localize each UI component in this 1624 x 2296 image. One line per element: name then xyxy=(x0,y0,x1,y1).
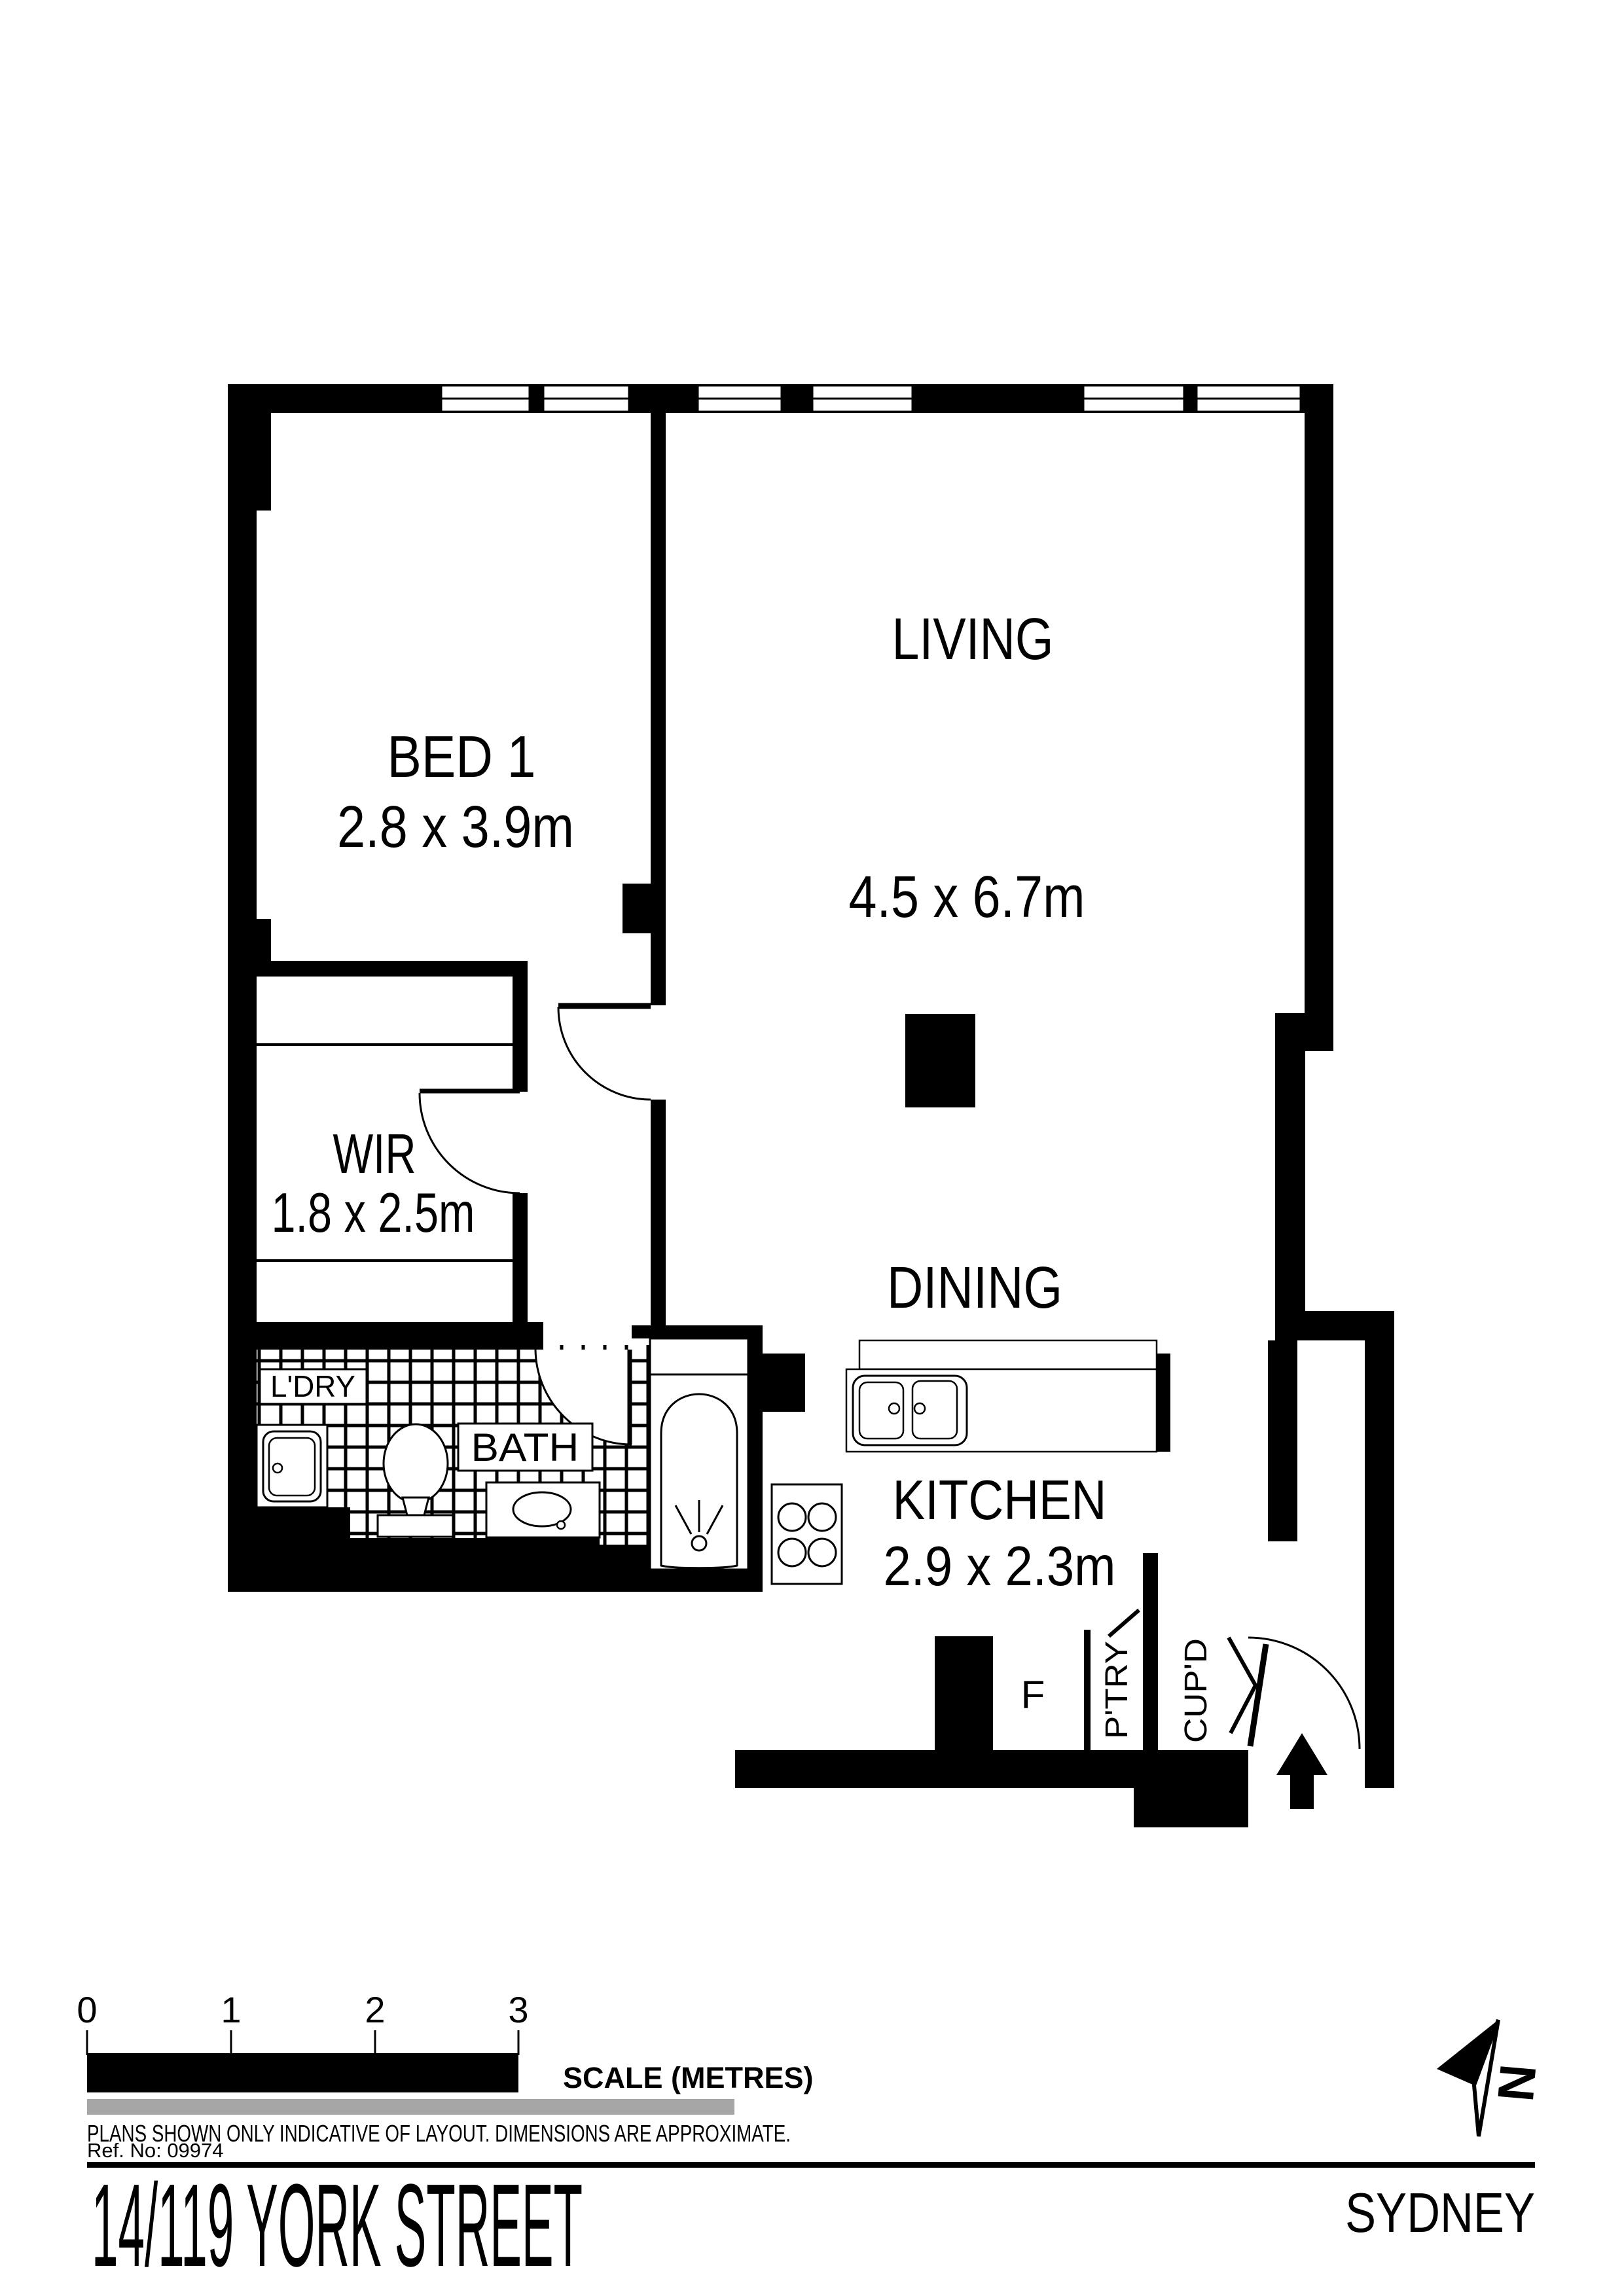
laundry-label-box: L'DRY xyxy=(260,1369,367,1404)
pantry-label: P'TRY xyxy=(1100,1641,1134,1739)
room-label-kitchen: KITCHEN xyxy=(893,1469,1107,1532)
burner-icon xyxy=(778,1503,806,1531)
north-arrow-icon: N xyxy=(1437,2020,1547,2136)
burner-icon xyxy=(808,1539,836,1566)
wall-wir-bottom xyxy=(228,1322,543,1350)
wall-entry-right xyxy=(1365,1340,1394,1788)
bath-label-box: BATH xyxy=(458,1424,592,1471)
windows xyxy=(441,386,1301,412)
room-label-wir: WIR xyxy=(333,1123,416,1185)
north-letter: N xyxy=(1487,2062,1547,2104)
wall-left-pier-top xyxy=(228,384,271,511)
walls xyxy=(228,384,1394,1827)
wall-kitchen-return xyxy=(763,1354,805,1412)
pantry-door-leaf xyxy=(1109,1610,1139,1636)
footer-address: 14/119 YORK STREET xyxy=(92,2160,583,2291)
wall-dining-east xyxy=(1268,1340,1297,1541)
room-dims-kitchen: 2.9 x 2.3m xyxy=(884,1535,1116,1598)
wall-bottom-step xyxy=(1134,1788,1248,1827)
window-pane xyxy=(1197,386,1301,412)
entry-arrow-icon xyxy=(1276,1733,1327,1809)
wall-fridge-stub xyxy=(935,1636,993,1751)
laundry-tub xyxy=(257,1425,327,1507)
scale-gray-bar xyxy=(87,2099,734,2115)
wir-door-arc xyxy=(420,1093,520,1193)
room-label-bed1: BED 1 xyxy=(388,725,536,790)
wall-right-upper xyxy=(1305,384,1333,1013)
footer-city: SYDNEY xyxy=(1345,2182,1535,2244)
double-sink xyxy=(853,1376,967,1445)
entry-door-leaf xyxy=(1250,1644,1266,1746)
burner-icon xyxy=(808,1503,836,1531)
scale-bar: 0 1 2 3 SCALE (METRES) xyxy=(77,1989,813,2115)
room-dims-living: 4.5 x 6.7m xyxy=(849,865,1085,930)
room-label-laundry: L'DRY xyxy=(270,1369,355,1403)
wall-robe-right xyxy=(513,961,528,1092)
fridge-label: F xyxy=(1021,1673,1045,1717)
floorplan-drawing: BED 1 2.8 x 3.9m LIVING 4.5 x 6.7m DININ… xyxy=(0,0,1624,2296)
scale-baseline xyxy=(87,2053,518,2055)
window-pane xyxy=(441,386,530,412)
scale-black-bar xyxy=(87,2055,518,2092)
room-dims-wir: 1.8 x 2.5m xyxy=(272,1182,475,1244)
room-dims-bed1: 2.8 x 3.9m xyxy=(337,795,574,860)
wall-bath-top xyxy=(632,1325,763,1338)
kitchen-island xyxy=(846,1340,1157,1452)
tap-icon xyxy=(557,1521,565,1529)
wall-bottom-exterior xyxy=(735,1750,1248,1788)
window-pane xyxy=(543,386,629,412)
window-pane xyxy=(812,386,912,412)
wall-bath-bottom xyxy=(228,1538,600,1592)
reference-number: Ref. No: 09974 xyxy=(87,2139,224,2162)
bed1-door-arc xyxy=(558,1007,651,1100)
scale-tick-3: 3 xyxy=(508,1989,528,2030)
room-label-living: LIVING xyxy=(892,607,1054,672)
vanity-basin xyxy=(486,1482,600,1537)
cupboard-bifold-door xyxy=(1229,1638,1255,1733)
room-label-dining: DINING xyxy=(887,1255,1062,1321)
tap-icon xyxy=(914,1403,925,1414)
wall-island-end xyxy=(1157,1354,1170,1452)
structural-column xyxy=(905,1014,975,1107)
cupboard-label: CUP'D xyxy=(1179,1638,1214,1743)
wall-pantry-right xyxy=(1143,1553,1158,1751)
tap-icon xyxy=(273,1463,282,1473)
wall-left-pier-mid xyxy=(228,919,271,961)
wall-pantry-left xyxy=(1084,1630,1091,1751)
bathtub xyxy=(650,1338,748,1570)
wall-entry-connector xyxy=(1297,1311,1394,1340)
window-pane xyxy=(1083,386,1184,412)
shower-drain-icon xyxy=(692,1536,706,1551)
wall-left-exterior xyxy=(228,384,257,1592)
wall-right-jog xyxy=(1275,1013,1333,1051)
toilet xyxy=(378,1424,453,1537)
wall-hall-living xyxy=(651,1100,666,1325)
wall-right-mid xyxy=(1275,1051,1305,1340)
wall-bed1-pier xyxy=(623,884,666,933)
scale-tick-0: 0 xyxy=(77,1989,97,2030)
cooktop xyxy=(772,1484,842,1584)
room-label-bath: BATH xyxy=(471,1426,579,1469)
scale-caption: SCALE (METRES) xyxy=(563,2061,814,2094)
scale-tick-1: 1 xyxy=(221,1989,241,2030)
tap-icon xyxy=(889,1403,899,1414)
burner-icon xyxy=(778,1539,806,1566)
window-pane xyxy=(698,386,782,412)
scale-tick-2: 2 xyxy=(365,1989,385,2030)
wall-bath-kitchen xyxy=(748,1337,763,1579)
wall-bed1-bottom xyxy=(257,961,528,977)
floorplan-page: BED 1 2.8 x 3.9m LIVING 4.5 x 6.7m DININ… xyxy=(0,0,1624,2296)
